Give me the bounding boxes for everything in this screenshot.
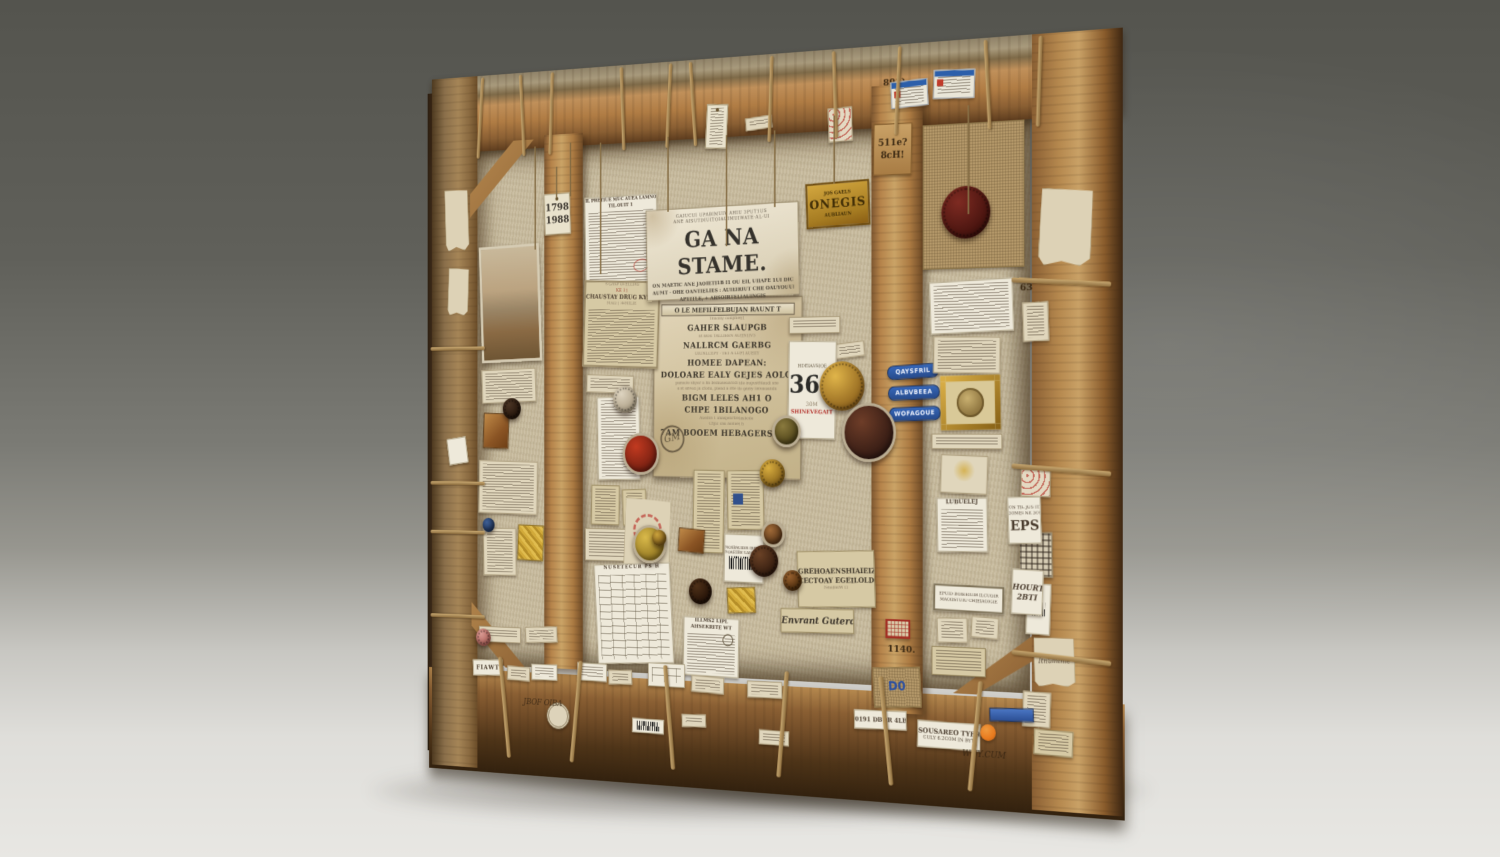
seal-pink: [476, 628, 491, 646]
seal-copper-coin: [783, 570, 802, 591]
lc-gold-book: [517, 524, 544, 561]
fb-8: [681, 714, 706, 727]
rp-label-1: [929, 277, 1014, 334]
form-illms2: ILLMS2 LIPLAHSEKRITE WT: [683, 616, 740, 679]
certificate-line: Tauciliy conijmeti1: [661, 316, 794, 322]
fb-5: [608, 670, 632, 685]
fb-9: [759, 729, 789, 746]
seal-red-pot: [623, 433, 660, 475]
rp-label-7: [932, 646, 986, 678]
seal-gold-lg: [820, 361, 865, 411]
twine-string: [600, 143, 602, 275]
seal-gold-cap: [652, 530, 666, 547]
post-1140: 1140.: [884, 642, 919, 657]
main-banner: GAIUCUI UPABIMUIV AHIU 3PUT1US ANE AISUT…: [646, 201, 800, 302]
label-envrant: Envrant Guteronag: [780, 608, 854, 634]
seal-rosette: [503, 398, 521, 419]
certificate-line: pansole shyer a ha bemuseuarcdi ide augu…: [661, 381, 794, 386]
seal-emboss: [613, 386, 637, 413]
lc-stamp: [483, 413, 509, 449]
certificate-line: BIGM LELES AH1 O: [661, 394, 794, 404]
rp-label-2: [933, 336, 1001, 373]
seal-blue: [483, 518, 495, 532]
twine-string: [774, 130, 776, 207]
copper-square: [678, 527, 705, 553]
twine-string: [570, 143, 572, 197]
pill-3: WOFAGOUE: [889, 406, 941, 422]
ft-block: 511e?8cH!: [873, 123, 913, 176]
pill-2: ALBVBEEA: [888, 384, 940, 401]
stile-orange-stamp: [1021, 469, 1051, 497]
banner-title: GA NA STAME.: [652, 220, 794, 281]
label-grehoue: GREHOAENSHIAIEIZECECTOAY EGEILOLDNaudmlW…: [797, 550, 876, 607]
tag-1798: 17981988: [544, 192, 571, 235]
certificate-monogram: GM: [658, 423, 686, 455]
ft-ship-2: [933, 69, 975, 99]
certificate-line: GAHER SLAUPGB: [661, 323, 794, 334]
gold-crinkle: [727, 587, 756, 614]
ml-stamp-1: [591, 485, 620, 526]
ledger-form: NUSETECUR PS H: [594, 562, 674, 663]
fb-blue: [989, 708, 1034, 723]
fb-0191: 0191 DBOR 4LBUM: [854, 709, 907, 730]
twine-string: [726, 135, 728, 246]
seal-copper-ring: [761, 521, 784, 548]
plaque-onegis: JOS GAELSONEGISAUBLIAUN: [805, 179, 870, 230]
fb-orange-dot: [980, 724, 996, 742]
seal-olive: [772, 415, 801, 447]
seal-gold-sm: [760, 459, 785, 487]
fb-barcode: [632, 717, 664, 734]
lc-card: [483, 528, 517, 576]
hourt-tag: HOURT2BTI: [1011, 568, 1044, 615]
twine-string: [667, 137, 669, 212]
certificate-line: UIUNLCEPY · TE1 A LUFI AUEIIY: [661, 351, 794, 356]
fb-2: [507, 665, 530, 681]
gold-shadowbox: [940, 375, 1001, 431]
seal-brown-pat: [750, 545, 778, 578]
display-board: GAIUCUI UPABIMUIV AHIU 3PUT1US ANE AISUT…: [438, 40, 1117, 804]
seal-brown-tin: [842, 403, 896, 462]
painting: [479, 243, 543, 364]
certificate-ribbon: O LE MEFILFELBUJAN RAUNT T: [661, 303, 794, 317]
rp-label-4: [940, 454, 988, 495]
twine-string: [833, 115, 835, 183]
lc-label-2: [479, 460, 538, 515]
stile-stamp-1: [1022, 301, 1049, 342]
post-red-stamp: [885, 619, 910, 639]
eps-tag: ON TIL JUS IT3OMEI NE 3OMEEPS: [1007, 496, 1042, 544]
rp-label-5: [937, 618, 968, 643]
twine-wrap: [431, 481, 485, 485]
fb-7: [747, 681, 782, 699]
studio-scene: GAIUCUI UPABIMUIV AHIU 3PUT1US ANE AISUT…: [0, 0, 1500, 857]
ls-scrap-1: [444, 189, 469, 252]
stile-canvas: [1037, 188, 1094, 266]
certificate-line: DOLOARE EALY GEJES AOLCIG SYED: [661, 371, 794, 380]
fb-6: [691, 675, 724, 695]
certificate-line: HOMEE DAPEAN:: [661, 359, 794, 369]
certificate-line: CHPE 1BILANOGO: [661, 406, 794, 416]
stile-canvas-2: Itnumime: [1033, 637, 1076, 687]
rp-label-3: [932, 434, 1003, 450]
rp-list-label: LUBUELEJ: [937, 498, 989, 553]
ls-scrap-2: [447, 268, 469, 315]
seal-dark: [689, 578, 712, 605]
tall-label-2: [727, 470, 764, 530]
frame-stile-left: [432, 76, 477, 768]
certificate-line: at asou TALLIEEN AUIIN1IV3: [661, 334, 794, 340]
lc-tiny-2: [525, 626, 558, 643]
twine-string: [968, 105, 970, 214]
certificate-line: NALLRCM GAERBG: [661, 341, 794, 351]
twine-string: [534, 146, 536, 249]
rp-bordered: EPUID BOIEEIUIR ILCUOIRMAOIISTUIU CHIEIA…: [933, 583, 1004, 614]
fb-10: [1033, 728, 1073, 758]
ls-tag: [447, 436, 469, 465]
ft-stamp-red: [828, 106, 853, 142]
rp-label-6: [971, 616, 999, 640]
label-above-366: [789, 316, 840, 334]
twine-string: [556, 167, 558, 197]
certificate-line: a st anven ja cfonu, plend a rite ilo ga…: [661, 387, 794, 392]
fb-3: [531, 664, 557, 681]
certificate: O LE MEFILFELBUJAN RAUNT T Tauciliy coni…: [653, 296, 803, 480]
